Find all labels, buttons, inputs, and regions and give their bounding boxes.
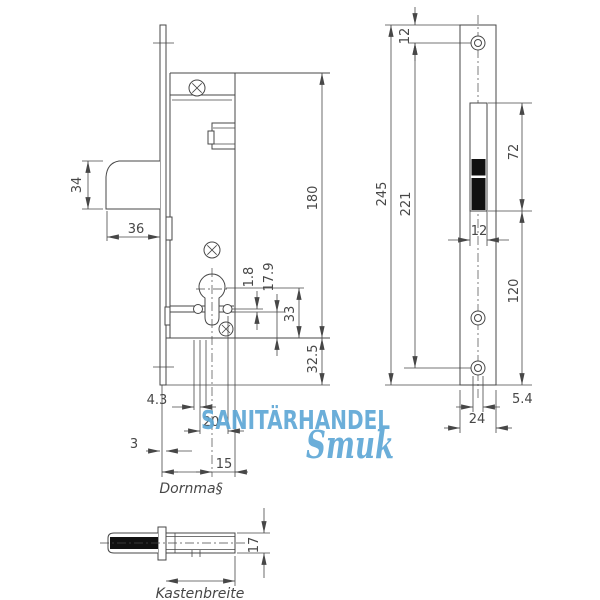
dim-text-4-3: 4.3 bbox=[147, 393, 168, 408]
dim-text-36: 36 bbox=[128, 222, 145, 237]
latch-block bbox=[212, 123, 235, 149]
faceplate-tab-lower bbox=[165, 307, 170, 325]
dim-text-245: 245 bbox=[375, 182, 390, 207]
ext-lines-lower bbox=[162, 316, 235, 477]
screw-hole-bottom bbox=[471, 361, 485, 375]
dim-text-180: 180 bbox=[306, 186, 321, 211]
dim-text-1-8: 1.8 bbox=[242, 267, 257, 288]
bolt-visible-lower bbox=[472, 178, 486, 210]
ext-lines-34 bbox=[82, 161, 103, 209]
dim-text-33: 33 bbox=[283, 306, 298, 323]
drawing-canvas: 34 36 180 1.8 17.9 33 32.5 4.3 20 3 15 D… bbox=[0, 0, 600, 600]
fixing-nub-right bbox=[223, 305, 232, 314]
dim-text-12-cutout: 12 bbox=[471, 224, 488, 239]
screw-symbol-lower bbox=[219, 322, 233, 336]
dim-text-3: 3 bbox=[130, 437, 138, 452]
label-kastenbreite: Kastenbreite bbox=[156, 586, 245, 600]
fixing-nub-left bbox=[194, 305, 203, 314]
watermark-line2: Smuk bbox=[306, 422, 394, 467]
screw-hole-top bbox=[471, 36, 485, 50]
faceplate-tab-upper bbox=[166, 217, 172, 240]
latch-pin bbox=[208, 131, 214, 144]
screw-symbol-top bbox=[189, 80, 205, 96]
dim-text-15: 15 bbox=[216, 457, 233, 472]
bolt-visible-upper bbox=[472, 159, 486, 176]
dim-text-12-top: 12 bbox=[398, 28, 413, 45]
faceplate-section bbox=[158, 527, 166, 560]
lock-top-view bbox=[100, 508, 270, 586]
faceplate-edge bbox=[160, 25, 166, 385]
screw-symbol-middle bbox=[204, 242, 220, 258]
dim-text-32-5: 32.5 bbox=[306, 345, 321, 374]
faceplate-front-view bbox=[385, 7, 532, 433]
bolt bbox=[106, 161, 160, 209]
dim-text-17: 17 bbox=[247, 537, 262, 554]
dim-text-5-4: 5.4 bbox=[512, 392, 533, 407]
dim-text-72: 72 bbox=[507, 144, 522, 161]
dim-text-34: 34 bbox=[70, 177, 85, 194]
dim-text-24: 24 bbox=[469, 412, 486, 427]
screw-hole-middle bbox=[471, 311, 485, 325]
technical-drawing-lock: 34 36 180 1.8 17.9 33 32.5 4.3 20 3 15 D… bbox=[0, 0, 600, 600]
label-dornmass: Dornma§ bbox=[159, 481, 222, 497]
dim-text-17-9: 17.9 bbox=[262, 263, 277, 292]
dim-text-120: 120 bbox=[507, 279, 522, 304]
dim-text-221: 221 bbox=[399, 192, 414, 217]
ext-spindle-lines bbox=[232, 309, 284, 312]
